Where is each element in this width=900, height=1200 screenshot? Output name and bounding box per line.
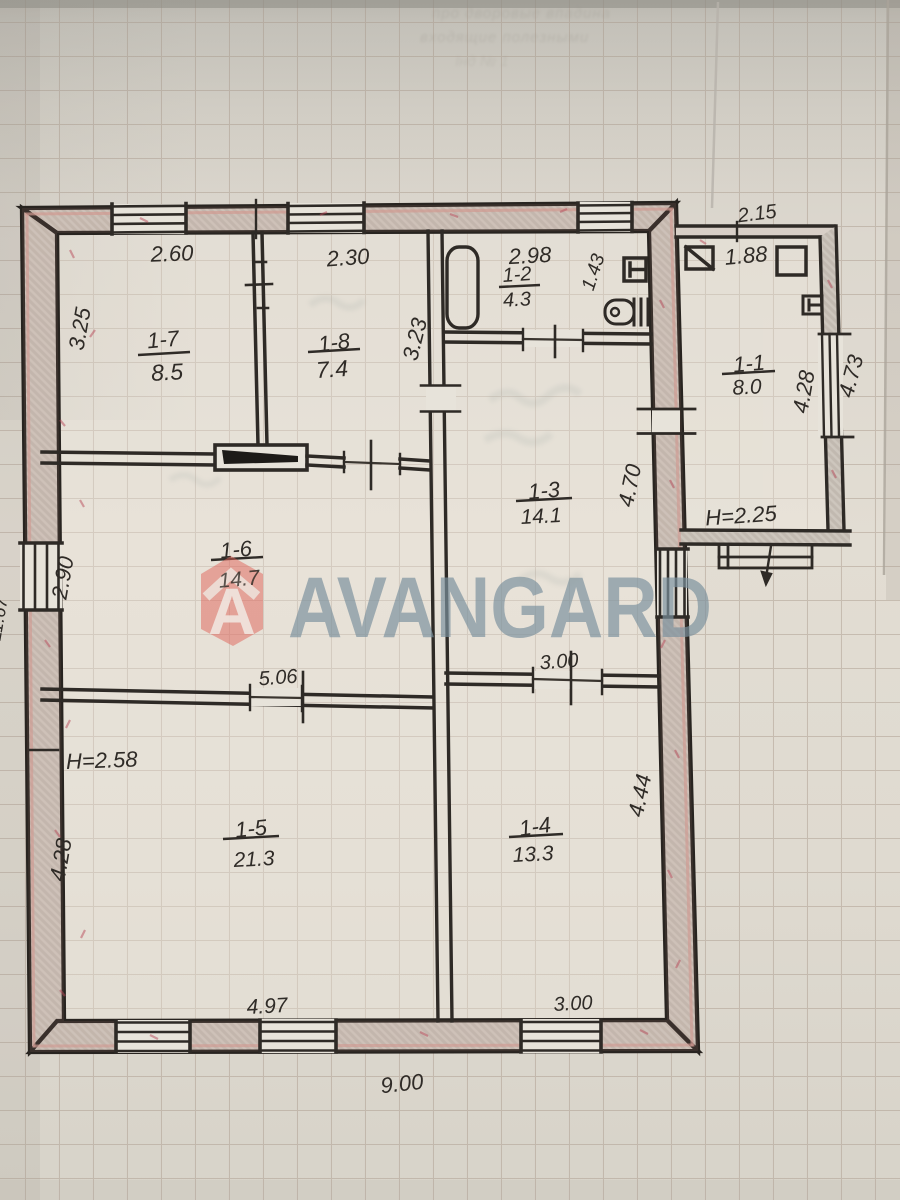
svg-text:входящие полезными: входящие полезными xyxy=(420,29,589,46)
svg-text:1-7: 1-7 xyxy=(146,326,181,354)
svg-text:H=2.25: H=2.25 xyxy=(704,500,778,530)
svg-text:9.00: 9.00 xyxy=(379,1069,425,1098)
svg-text:21.3: 21.3 xyxy=(232,847,275,872)
svg-text:4.3: 4.3 xyxy=(503,288,532,311)
svg-text:AVANGARD: AVANGARD xyxy=(288,560,712,656)
svg-text:13.3: 13.3 xyxy=(512,842,554,867)
svg-text:Інд № 1: Інд № 1 xyxy=(455,53,509,70)
svg-text:8.5: 8.5 xyxy=(150,358,183,386)
svg-text:H=2.58: H=2.58 xyxy=(66,746,139,774)
svg-text:2.60: 2.60 xyxy=(149,240,194,267)
svg-text:5.06: 5.06 xyxy=(258,666,299,691)
svg-text:4.97: 4.97 xyxy=(246,994,289,1019)
svg-text:7.4: 7.4 xyxy=(315,355,349,383)
svg-text:1.88: 1.88 xyxy=(724,241,770,270)
svg-text:про дворовые впадина: про дворовые впадина xyxy=(432,5,611,22)
svg-text:2.30: 2.30 xyxy=(325,243,371,271)
svg-text:14.1: 14.1 xyxy=(520,504,562,529)
svg-text:1-8: 1-8 xyxy=(317,328,352,357)
svg-text:3.00: 3.00 xyxy=(553,992,593,1016)
svg-text:8.0: 8.0 xyxy=(732,375,763,400)
svg-text:14.7: 14.7 xyxy=(218,566,262,593)
svg-text:1-2: 1-2 xyxy=(502,263,532,287)
